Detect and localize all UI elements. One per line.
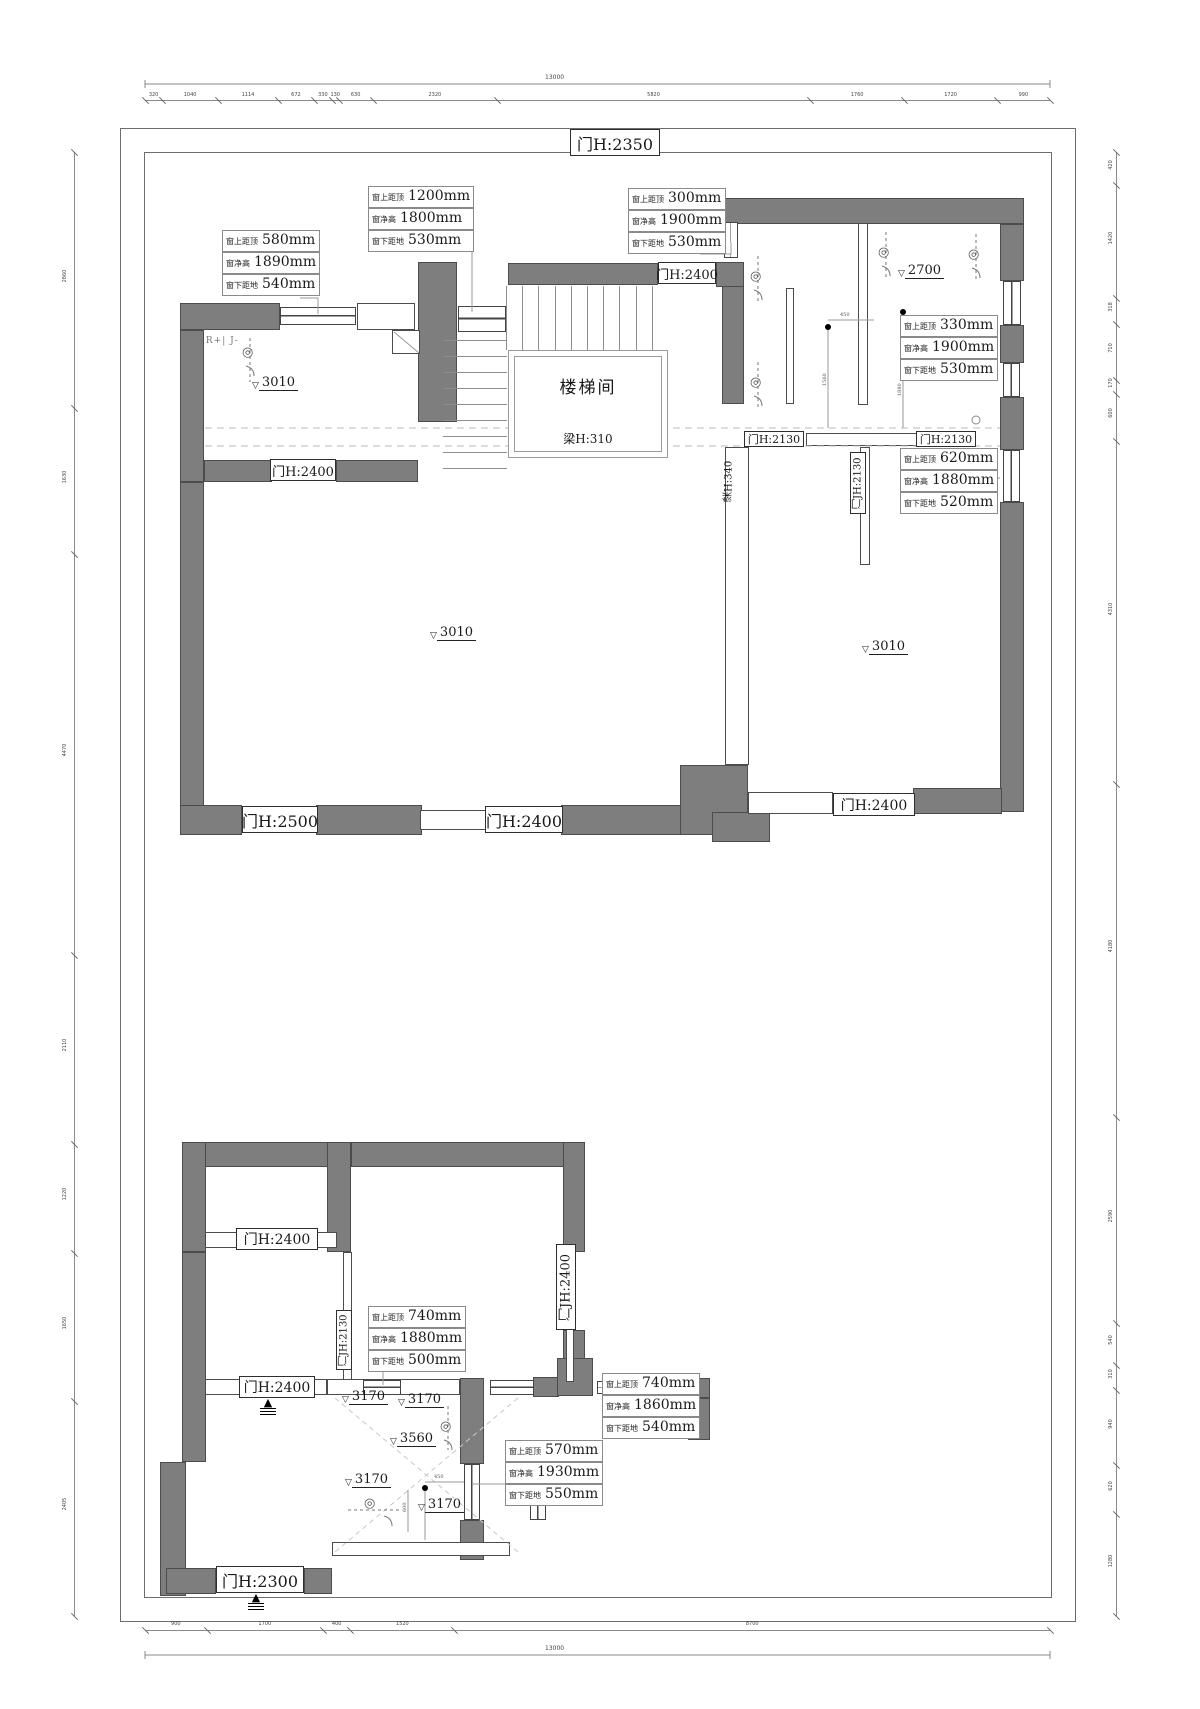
annotation-value: 1880mm (400, 1330, 462, 1346)
elevation-value: 3560 (397, 1432, 436, 1447)
elevation-value: 3010 (437, 626, 476, 641)
window-annotation: 窗上距顶740mm 窗净高1860mm 窗下距地540mm (602, 1373, 700, 1439)
dim-value: 1560 (822, 373, 828, 386)
window-annotation: 窗上距顶1200mm 窗净高1800mm 窗下距地530mm (368, 186, 474, 252)
shower-icon: ◎ (750, 270, 761, 283)
annotation-value: 1800mm (400, 210, 462, 226)
annotation-key: 窗下距地 (904, 498, 936, 509)
point-marker (825, 324, 831, 330)
annotation-value: 1890mm (254, 254, 316, 270)
annotation-value: 1880mm (932, 472, 994, 488)
annotation-value: 330mm (940, 317, 993, 333)
annotation-key: 窗上距顶 (606, 1379, 638, 1390)
annotation-value: 500mm (408, 1352, 461, 1368)
elevation-marker: ▽3170 (418, 1498, 464, 1513)
elevation-triangle-icon: ▽ (418, 1504, 425, 1513)
elevation-value: 3170 (405, 1393, 444, 1408)
annotation-key: 窗上距顶 (632, 194, 664, 205)
beam-label-vertical: 梁H:340 (722, 450, 736, 512)
shower-icon: ◎ (364, 1497, 375, 1510)
elevation-triangle-icon: ▽ (345, 1479, 352, 1488)
door-height-label: 门H:2400 (236, 1228, 318, 1250)
door-height-label: 门H:2500 (242, 806, 318, 833)
dim-value: 450 (434, 1474, 444, 1480)
elevation-marker: ▽2700 (898, 264, 944, 279)
elevation-marker: ▽3010 (862, 640, 908, 655)
annotation-value: 740mm (642, 1375, 695, 1391)
elevation-value: 3170 (352, 1473, 391, 1488)
annotation-value: 540mm (642, 1419, 695, 1435)
floor-plan: 楼梯间 梁H:310 门H:2350 门H:2400 门H:2400 门H:21… (0, 0, 1200, 1709)
shower-icon: ◎ (878, 246, 889, 259)
elevation-value: 2700 (905, 264, 944, 279)
window-annotation: 窗上距顶300mm 窗净高1900mm 窗下距地530mm (628, 188, 726, 254)
annotation-key: 窗净高 (226, 258, 250, 269)
door-height-label-vertical: 门JH:2130 (850, 452, 866, 514)
annotation-key: 窗上距顶 (372, 1312, 404, 1323)
annotation-key: 窗净高 (509, 1468, 533, 1479)
annotation-value: 1200mm (408, 188, 470, 204)
annotation-key: 窗下距地 (372, 236, 404, 247)
annotation-key: 窗净高 (606, 1401, 630, 1412)
door-height-label: 门H:2400 (833, 793, 915, 816)
elevation-value: 3170 (425, 1498, 464, 1513)
window-annotation: 窗上距顶580mm 窗净高1890mm 窗下距地540mm (222, 230, 320, 296)
annotation-key: 窗净高 (904, 476, 928, 487)
annotation-key: 窗下距地 (904, 365, 936, 376)
elevation-triangle-icon: ▽ (252, 382, 259, 391)
door-height-label: 门H:2400 (485, 806, 563, 833)
door-height-label: 门H:2400 (239, 1376, 315, 1398)
arrow-head: ▲ (255, 1400, 281, 1407)
door-height-label: 门H:2400 (270, 459, 336, 481)
annotation-value: 300mm (668, 190, 721, 206)
elevation-marker: ▽3010 (430, 626, 476, 641)
annotation-value: 570mm (545, 1442, 598, 1458)
door-height-label-vertical: 门JH:2400 (556, 1244, 576, 1330)
shower-icon: ◎ (440, 1420, 451, 1433)
annotation-key: 窗上距顶 (904, 321, 936, 332)
door-height-label: 门H:2130 (744, 431, 804, 447)
annotation-value: 1900mm (660, 212, 722, 228)
annotation-key: 窗净高 (372, 1334, 396, 1345)
annotation-key: 窗下距地 (372, 1356, 404, 1367)
elevation-value: 3170 (349, 1390, 388, 1405)
annotation-value: 540mm (262, 276, 315, 292)
elevation-value: 3010 (259, 376, 298, 391)
elevation-marker: ▽3560 (390, 1432, 436, 1447)
door-height-label: 门H:2350 (570, 129, 660, 156)
annotation-key: 窗下距地 (606, 1423, 638, 1434)
elevation-marker: ▽3010 (252, 376, 298, 391)
annotation-key: 窗下距地 (632, 238, 664, 249)
elevation-triangle-icon: ▽ (430, 632, 437, 641)
annotation-key: 窗净高 (372, 214, 396, 225)
annotation-key: 窗净高 (904, 343, 928, 354)
door-height-label: 门H:2400 (658, 262, 716, 284)
window-annotation: 窗上距顶740mm 窗净高1880mm 窗下距地500mm (368, 1306, 466, 1372)
annotation-value: 1860mm (634, 1397, 696, 1413)
annotation-key: 窗上距顶 (509, 1446, 541, 1457)
arrow-head: ▲ (243, 1595, 269, 1602)
elevation-marker: ▽3170 (342, 1390, 388, 1405)
door-height-label: 门H:2130 (916, 431, 976, 447)
dim-total: 13000 (545, 74, 564, 81)
annotation-value: 620mm (940, 450, 993, 466)
annotation-value: 530mm (668, 234, 721, 250)
elevation-triangle-icon: ▽ (390, 1438, 397, 1447)
stairwell-box: 楼梯间 梁H:310 (508, 350, 668, 458)
dim-value: 450 (840, 312, 850, 318)
knob-circle (972, 416, 980, 424)
room-label-stairwell: 楼梯间 (509, 373, 667, 398)
point-marker (422, 1485, 428, 1491)
elevation-triangle-icon: ▽ (398, 1399, 405, 1408)
shower-icon: ◎ (750, 376, 761, 389)
beam-label: 梁H:310 (509, 430, 667, 447)
annotation-value: 1930mm (537, 1464, 599, 1480)
annotation-value: 530mm (940, 361, 993, 377)
annotation-key: 窗上距顶 (904, 454, 936, 465)
dim-total: 13000 (545, 1645, 564, 1652)
window-annotation: 窗上距顶570mm 窗净高1930mm 窗下距地550mm (505, 1440, 603, 1506)
window-annotation: 窗上距顶620mm 窗净高1880mm 窗下距地520mm (900, 448, 998, 514)
annotation-key: 窗上距顶 (372, 192, 404, 203)
elevation-triangle-icon: ▽ (898, 270, 905, 279)
annotation-value: 740mm (408, 1308, 461, 1324)
fixture-block-label: - R+| J- (198, 336, 239, 346)
entry-arrow-icon: ▲ (243, 1595, 269, 1610)
annotation-key: 窗净高 (632, 216, 656, 227)
annotation-value: 530mm (408, 232, 461, 248)
annotation-key: 窗下距地 (509, 1490, 541, 1501)
dim-value: 1880 (897, 383, 903, 396)
shower-icon: ◎ (242, 346, 253, 359)
elevation-marker: ▽3170 (398, 1393, 444, 1408)
annotation-value: 550mm (545, 1486, 598, 1502)
annotation-value: 1900mm (932, 339, 994, 355)
shower-icon: ◎ (968, 248, 979, 261)
window-annotation: 窗上距顶330mm 窗净高1900mm 窗下距地530mm (900, 315, 998, 381)
elevation-triangle-icon: ▽ (862, 646, 869, 655)
elevation-triangle-icon: ▽ (342, 1396, 349, 1405)
annotation-value: 520mm (940, 494, 993, 510)
elevation-marker: ▽3170 (345, 1473, 391, 1488)
dim-value: 600 (402, 1502, 408, 1512)
annotation-key: 窗上距顶 (226, 236, 258, 247)
entry-arrow-icon: ▲ (255, 1400, 281, 1415)
annotation-key: 窗下距地 (226, 280, 258, 291)
elevation-value: 3010 (869, 640, 908, 655)
door-height-label-vertical: 门JH:2130 (336, 1310, 352, 1370)
annotation-value: 580mm (262, 232, 315, 248)
door-height-label: 门H:2300 (216, 1566, 304, 1593)
